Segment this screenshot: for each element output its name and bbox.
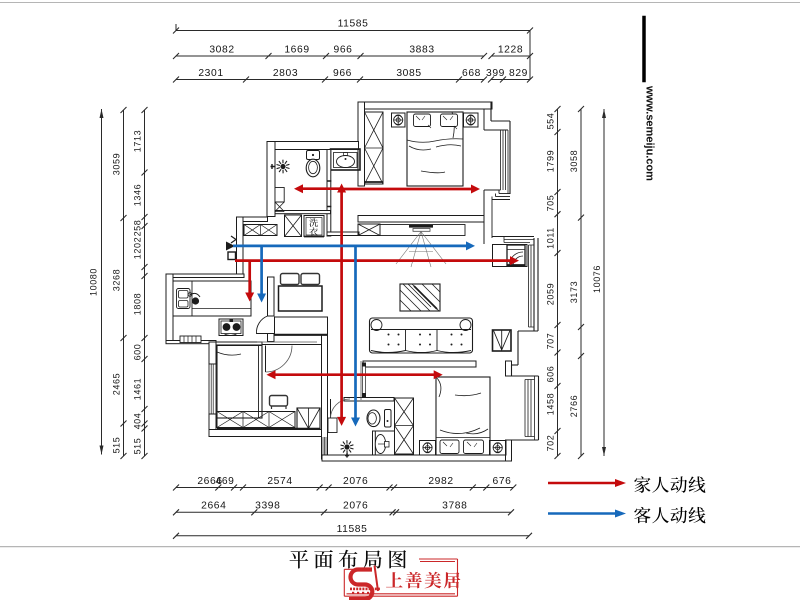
svg-text:3082: 3082 (209, 45, 234, 56)
svg-text:2076: 2076 (343, 476, 368, 487)
svg-text:1011: 1011 (546, 227, 556, 249)
svg-text:399: 399 (486, 68, 505, 79)
svg-text:676: 676 (493, 476, 512, 487)
svg-text:1461: 1461 (133, 378, 143, 400)
svg-text:2766: 2766 (569, 395, 579, 417)
svg-text:www.semeiju.com: www.semeiju.com (644, 85, 656, 181)
svg-text:2465: 2465 (112, 373, 122, 395)
svg-text:469: 469 (216, 476, 235, 487)
svg-text:11585: 11585 (337, 524, 368, 535)
svg-text:2059: 2059 (546, 283, 556, 305)
svg-text:2803: 2803 (273, 68, 298, 79)
svg-text:2301: 2301 (198, 68, 223, 79)
svg-text:2982: 2982 (428, 476, 453, 487)
svg-text:11585: 11585 (338, 19, 369, 30)
svg-text:515: 515 (133, 438, 143, 455)
svg-text:3398: 3398 (255, 501, 280, 512)
svg-text:404: 404 (133, 413, 143, 430)
svg-text:3883: 3883 (409, 45, 434, 56)
svg-text:3085: 3085 (396, 68, 421, 79)
svg-text:2574: 2574 (267, 476, 292, 487)
svg-text:966: 966 (333, 68, 352, 79)
svg-text:2076: 2076 (343, 501, 368, 512)
svg-text:600: 600 (133, 344, 143, 361)
svg-text:3788: 3788 (442, 501, 467, 512)
svg-text:606: 606 (546, 366, 556, 383)
svg-text:1669: 1669 (284, 45, 309, 56)
svg-text:1713: 1713 (133, 130, 143, 152)
svg-text:707: 707 (546, 333, 556, 350)
svg-text:515: 515 (112, 437, 122, 454)
svg-text:1228: 1228 (498, 45, 523, 56)
svg-text:829: 829 (509, 68, 528, 79)
svg-text:705: 705 (546, 195, 556, 212)
svg-text:1799: 1799 (546, 150, 556, 172)
svg-text:3058: 3058 (569, 150, 579, 172)
svg-text:1346: 1346 (133, 184, 143, 206)
svg-text:966: 966 (334, 45, 353, 56)
svg-text:1458: 1458 (546, 393, 556, 415)
svg-text:10076: 10076 (592, 265, 602, 293)
svg-text:10080: 10080 (89, 268, 99, 296)
svg-text:2664: 2664 (201, 501, 226, 512)
svg-text:3059: 3059 (112, 153, 122, 175)
svg-text:1808: 1808 (133, 293, 143, 315)
svg-text:1202: 1202 (133, 237, 143, 259)
svg-text:3268: 3268 (112, 269, 122, 291)
svg-text:702: 702 (546, 435, 556, 452)
svg-text:668: 668 (462, 68, 481, 79)
svg-text:3173: 3173 (569, 281, 579, 303)
svg-text:258: 258 (133, 220, 143, 237)
svg-text:554: 554 (546, 113, 556, 130)
